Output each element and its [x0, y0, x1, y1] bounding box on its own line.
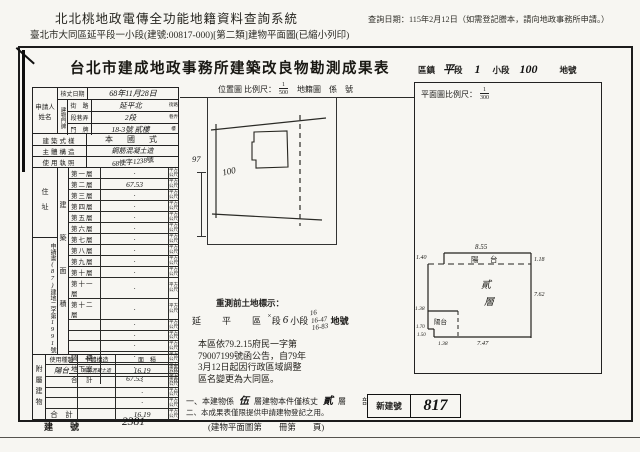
scale-denominator: 500 — [279, 88, 288, 96]
attached-structure — [78, 377, 116, 387]
unit-label: 平方公尺 — [168, 409, 178, 420]
survey-result-sheet: 台北市建成地政事務所建築改良物勘測成果表 區鎮 平 段 1 小段 100 地號 … — [18, 46, 633, 422]
floor-plan-panel: 平面圖比例尺： 1 300 8.55 陽 台 1.40 — [414, 82, 602, 374]
appref-p3: 號 — [49, 347, 55, 353]
attached-structure — [78, 398, 116, 408]
floor-area-value: · — [101, 202, 168, 211]
floor-area-value: · — [101, 246, 168, 255]
street-value: 延平北 — [92, 100, 169, 111]
address-label: 住址 — [33, 168, 57, 238]
note1-pre: 一、本建物係 — [186, 396, 234, 407]
unit-label: 平方公尺 — [168, 331, 178, 341]
street-suffix: 街路 — [169, 103, 178, 108]
pre-survey-parcels: 16 16-47 16-83 — [310, 308, 329, 333]
dim-left-3: 1.50 — [417, 333, 426, 338]
attached-structure-header: 主體構造 — [78, 355, 116, 364]
attached-row: 陽台 鋼筋混凝土造 16.19 平方公尺 — [46, 365, 178, 377]
application-ref: 申請書(87)建地二字第1991號 — [33, 238, 57, 354]
door-plate-label: 建物門牌 — [58, 100, 68, 135]
license-value: 68使字1238號 — [87, 157, 178, 167]
attached-area: 16.19 — [116, 366, 168, 375]
floor-area-value: · — [101, 284, 168, 293]
floor-area-value: · — [101, 331, 168, 340]
boundary-tick-top — [197, 172, 206, 173]
query-date: 查詢日期：115年2月12日（如需登記謄本，請向地政事務所申請。） — [368, 13, 609, 25]
attached-row: · 平方公尺 — [46, 377, 178, 388]
floors-list: 第一層 · 平方公尺 第二層 67.53 平方公尺 第三層 · 平方公尺 第四層… — [69, 168, 178, 354]
notice-line: 3月12日起因行政區域調整 — [198, 362, 374, 374]
attached-type-header: 使用種類 — [46, 355, 78, 364]
floor-label — [69, 341, 101, 351]
floor-label-1: 貳 — [481, 279, 493, 291]
neighbor-parcel-97: 97 — [192, 154, 201, 164]
lane-value: 2段 — [92, 112, 169, 123]
document-subtitle: 臺北市大同區延平段一小段(建號:00817-000)[第二類]建物平面圖(已縮小… — [30, 27, 349, 41]
survey-date-label: 核丈日期 — [58, 88, 88, 99]
floor-area-value: · — [101, 213, 168, 222]
floor-label-2: 層 — [484, 297, 495, 308]
unit-label: 平方公尺 — [168, 223, 178, 233]
unit-label: 平方公尺 — [168, 320, 178, 330]
location-map-sketch: 100 — [208, 98, 336, 244]
attached-area-header: 面 積 — [116, 355, 178, 364]
boundary-tick-bottom — [197, 236, 206, 237]
floor-row: 第二層 67.53 平方公尺 — [69, 179, 178, 190]
floor-area-section: 住址 申請書(87)建地二字第1991號 建築面積 第一層 · 平方公尺 第二層… — [33, 168, 178, 355]
street-label: 街 路 — [68, 100, 92, 111]
notice-line: 79007199號函公告，自79年 — [198, 351, 374, 363]
pre-survey-handmark: × — [267, 312, 272, 320]
unit-label: 平方公尺 — [168, 256, 178, 266]
dim-bottom: 7.47 — [477, 340, 489, 347]
floor-label: 第六層 — [69, 223, 101, 233]
attached-total-row: 合 計 16.19 平方公尺 — [46, 409, 178, 420]
corner-mark — [16, 47, 35, 65]
appref-p1: 申請書 — [49, 243, 55, 261]
license-label: 使用執照 — [33, 157, 87, 167]
floor-label: 第二層 — [69, 179, 101, 189]
floor-label: 第十一層 — [69, 278, 101, 298]
scan-edge-artifact — [22, 50, 25, 172]
appref-p2: 建地二字第 — [49, 289, 55, 319]
floor-plan-scale-fraction: 1 300 — [480, 87, 489, 101]
floor-area-value: · — [101, 305, 168, 314]
floor-area-value: · — [101, 257, 168, 266]
unit-label: 平方公尺 — [168, 267, 178, 277]
floor-area-value: 67.53 — [101, 180, 168, 189]
pre-survey-region: 延 平 區 — [192, 314, 267, 327]
floor-label: 第七層 — [69, 234, 101, 244]
district-area-label: 區鎮 — [418, 64, 435, 76]
floor-label: 第五層 — [69, 212, 101, 222]
sheet-title: 台北市建成地政事務所建築改良物勘測成果表 — [70, 57, 390, 78]
floor-row: 第九層 · 平方公尺 — [69, 256, 178, 267]
attached-type — [46, 388, 78, 398]
attached-type — [46, 398, 78, 408]
unit-label: 平方公尺 — [168, 365, 178, 376]
unit-label: 平方公尺 — [168, 377, 178, 387]
pre-survey-parcel-label: 地號 — [331, 314, 349, 327]
floor-label: 第三層 — [69, 190, 101, 200]
note1-hand-floors: 伍 — [239, 392, 249, 407]
floor-label: 第九層 — [69, 256, 101, 266]
attached-header-row: 使用種類 主體構造 面 積 — [46, 355, 178, 365]
boundary-line — [201, 172, 202, 236]
applicant-label: 申請人姓名 — [33, 88, 58, 133]
district-number-hand: 1 — [475, 62, 481, 77]
unit-label: 平方公尺 — [168, 245, 178, 255]
structure-row: 主體構造 鋼筋混凝土造 — [33, 146, 178, 157]
license-suffix: 號 — [146, 156, 154, 165]
dim-right: 7.62 — [534, 292, 545, 298]
floor-row: 第十二層 · 平方公尺 — [69, 299, 178, 320]
attached-total-label: 合 計 — [46, 409, 78, 420]
unit-label: 平方公尺 — [168, 168, 178, 178]
dim-top-left: 1.40 — [416, 254, 427, 261]
attached-type: 陽台 — [46, 365, 78, 376]
unit-label: 平方公尺 — [168, 388, 178, 398]
floor-row: 第六層 · 平方公尺 — [69, 223, 178, 234]
attached-total-spacer — [78, 409, 116, 420]
scanned-document-page: 北北桃地政電傳全功能地籍資料查詢系統 查詢日期：115年2月12日（如需登記謄本… — [0, 0, 640, 452]
floor-row: · 平方公尺 — [69, 341, 178, 352]
note1-suffix: 層 — [338, 396, 346, 407]
district-parcel-hand: 100 — [520, 62, 538, 77]
district-sub-label: 小段 — [493, 64, 510, 76]
house-number-suffix: 樓 — [169, 127, 178, 132]
building-number-value: 2381 — [122, 416, 145, 428]
floor-row: 第七層 · 平方公尺 — [69, 234, 178, 245]
attached-type — [46, 377, 78, 387]
attached-structure — [78, 388, 116, 398]
unit-label: 平方公尺 — [168, 234, 178, 244]
district-section-hand: 平 — [443, 61, 454, 77]
floor-area-value: · — [101, 224, 168, 233]
unit-label: 平方公尺 — [168, 398, 178, 408]
attached-area: · — [116, 398, 168, 407]
floor-label — [69, 320, 101, 330]
pre-survey-title: 重測前土地標示： — [216, 297, 284, 309]
small-balcony-label: 陽台 — [434, 317, 447, 326]
style-row: 建築式樣 本 國 式 — [33, 134, 178, 146]
bottom-rule — [0, 437, 640, 438]
floor-row: 第八層 · 平方公尺 — [69, 245, 178, 256]
dim-left-1: 1.38 — [415, 306, 425, 312]
lane-suffix: 巷弄 — [169, 115, 178, 120]
floor-plan-scale-label: 平面圖比例尺： — [421, 89, 477, 100]
pre-survey-subsection-number: 6 — [283, 314, 289, 326]
new-building-number-value: 817 — [411, 395, 460, 417]
license-number: 1238 — [132, 157, 147, 166]
style-value: 本 國 式 — [87, 134, 178, 145]
floor-row: · 平方公尺 — [69, 331, 178, 342]
location-map-header: 位置圖 比例尺： 1 500 地籍圖 係 號 — [218, 82, 353, 96]
floor-area-value: · — [101, 320, 168, 329]
floor-label — [69, 331, 101, 341]
unit-label: 平方公尺 — [168, 212, 178, 222]
floor-label: 第十層 — [69, 267, 101, 277]
attached-label: 附屬建物 — [33, 355, 46, 419]
dim-top-right: 1.18 — [534, 257, 545, 263]
building-info-table: 申請人姓名 核丈日期 68年11月28日 建物門牌 街 路 延平北 街路 — [32, 87, 179, 420]
style-label: 建築式樣 — [33, 134, 87, 145]
floor-row: 第十層 · 平方公尺 — [69, 267, 178, 278]
survey-date-row: 核丈日期 68年11月28日 — [58, 88, 178, 100]
floor-area-value: · — [101, 235, 168, 244]
appref-h2: 1991 — [49, 319, 56, 347]
floor-row: 第三層 · 平方公尺 — [69, 190, 178, 201]
license-word: 使字 — [118, 158, 133, 167]
district-change-notice: 本區依79.2.15府民一字第 79007199號函公告，自79年 3月12日起… — [198, 339, 374, 385]
district-section-label: 段 — [454, 64, 463, 76]
location-map-scale-fraction: 1 500 — [279, 82, 288, 96]
floor-row: 第四層 · 平方公尺 — [69, 201, 178, 212]
unit-label: 平方公尺 — [168, 341, 178, 351]
floor-label: 第十二層 — [69, 299, 101, 319]
floor-plan-header: 平面圖比例尺： 1 300 — [421, 87, 492, 101]
cadastral-map-label: 地籍圖 係 號 — [297, 84, 353, 95]
unit-label: 平方公尺 — [168, 201, 178, 211]
unit-label: 平方公尺 — [168, 190, 178, 200]
attached-building-section: 附屬建物 使用種類 主體構造 面 積 陽台 鋼筋混凝土造 16.19 平方公尺 … — [33, 355, 178, 419]
dim-bottom-small: 1.38 — [438, 341, 448, 347]
floor-row: · 平方公尺 — [69, 320, 178, 331]
attached-structure: 鋼筋混凝土造 — [78, 365, 116, 376]
pre-survey-line: 延 平 區 × 段 6 小段 16 16-47 16-83 地號 — [192, 309, 349, 332]
note1-hand-surveyed: 貳 — [323, 392, 333, 407]
attached-area: · — [116, 388, 168, 397]
floor-area-value: · — [101, 268, 168, 277]
floor-area-column-label: 建築面積 — [58, 168, 69, 354]
structure-label: 主體構造 — [33, 146, 87, 156]
unit-label: 平方公尺 — [168, 278, 178, 298]
floor-label: 第一層 — [69, 168, 101, 178]
notice-line: 本區依79.2.15府民一字第 — [198, 339, 374, 351]
unit-label: 平方公尺 — [168, 299, 178, 319]
license-row: 使用執照 68使字1238號 — [33, 157, 178, 167]
floor-row: 第十一層 · 平方公尺 — [69, 278, 178, 299]
attached-row: · 平方公尺 — [46, 388, 178, 399]
floor-row: 第五層 · 平方公尺 — [69, 212, 178, 223]
lane-label: 段巷弄 — [68, 112, 92, 123]
floor-area-value: · — [101, 341, 168, 350]
system-title: 北北桃地政電傳全功能地籍資料查詢系統 — [55, 8, 298, 27]
street-row: 街 路 延平北 街路 — [68, 100, 178, 112]
footnote-1: 一、本建物係 伍 層建物本件僅核丈 貳 層 部份。 — [186, 392, 386, 407]
notice-line: 區名變更為大同區。 — [198, 374, 374, 386]
dim-left-2: 1.70 — [416, 325, 425, 330]
applicant-section: 申請人姓名 核丈日期 68年11月28日 建物門牌 街 路 延平北 街路 — [33, 88, 178, 134]
building-number-label: 建 號 — [44, 420, 83, 433]
location-map-scale-label: 位置圖 比例尺： — [218, 84, 276, 95]
pre-survey-sub-label: 小段 — [290, 314, 308, 327]
parcel-16-83: 16-83 — [312, 323, 329, 333]
attached-area: · — [116, 377, 168, 386]
balcony-label: 陽 台 — [471, 254, 500, 264]
dim-top: 8.55 — [475, 243, 488, 251]
parcel-number-100: 100 — [221, 165, 237, 178]
district-line: 區鎮 平 段 1 小段 100 地號 — [418, 61, 577, 77]
district-parcel-label: 地號 — [560, 64, 577, 76]
floor-plan-drawing: 8.55 陽 台 1.40 1.18 貳 層 7.62 陽台 1.38 1.70… — [415, 83, 601, 373]
pre-survey-section: 段 — [272, 314, 281, 327]
new-building-number-label: 新建號 — [368, 395, 411, 417]
location-map: 100 — [207, 97, 337, 245]
construction-section: 建築式樣 本 國 式 主體構造 鋼筋混凝土造 使用執照 68使字1238號 — [33, 134, 178, 168]
floor-area-value: · — [101, 169, 168, 178]
page-reference: (建物平面圖第 冊第 頁) — [208, 421, 324, 433]
floor-area-value: · — [101, 191, 168, 200]
scale-denominator: 300 — [480, 93, 489, 101]
survey-date-value: 68年11月28日 — [88, 88, 178, 99]
footnote-2: 二、本成果表僅限提供申請建物登記之用。 — [186, 407, 329, 418]
floor-label: 第四層 — [69, 201, 101, 211]
floor-label: 第八層 — [69, 245, 101, 255]
attached-row: · 平方公尺 — [46, 398, 178, 409]
floor-row: 第一層 · 平方公尺 — [69, 168, 178, 179]
structure-value: 鋼筋混凝土造 — [87, 146, 178, 156]
note1-mid: 層建物本件僅核丈 — [254, 396, 318, 407]
appref-h1: (87) — [49, 261, 56, 289]
lane-row: 段巷弄 2段 巷弄 — [68, 112, 178, 124]
unit-label: 平方公尺 — [168, 179, 178, 189]
new-building-number-box: 新建號 817 — [367, 394, 461, 418]
